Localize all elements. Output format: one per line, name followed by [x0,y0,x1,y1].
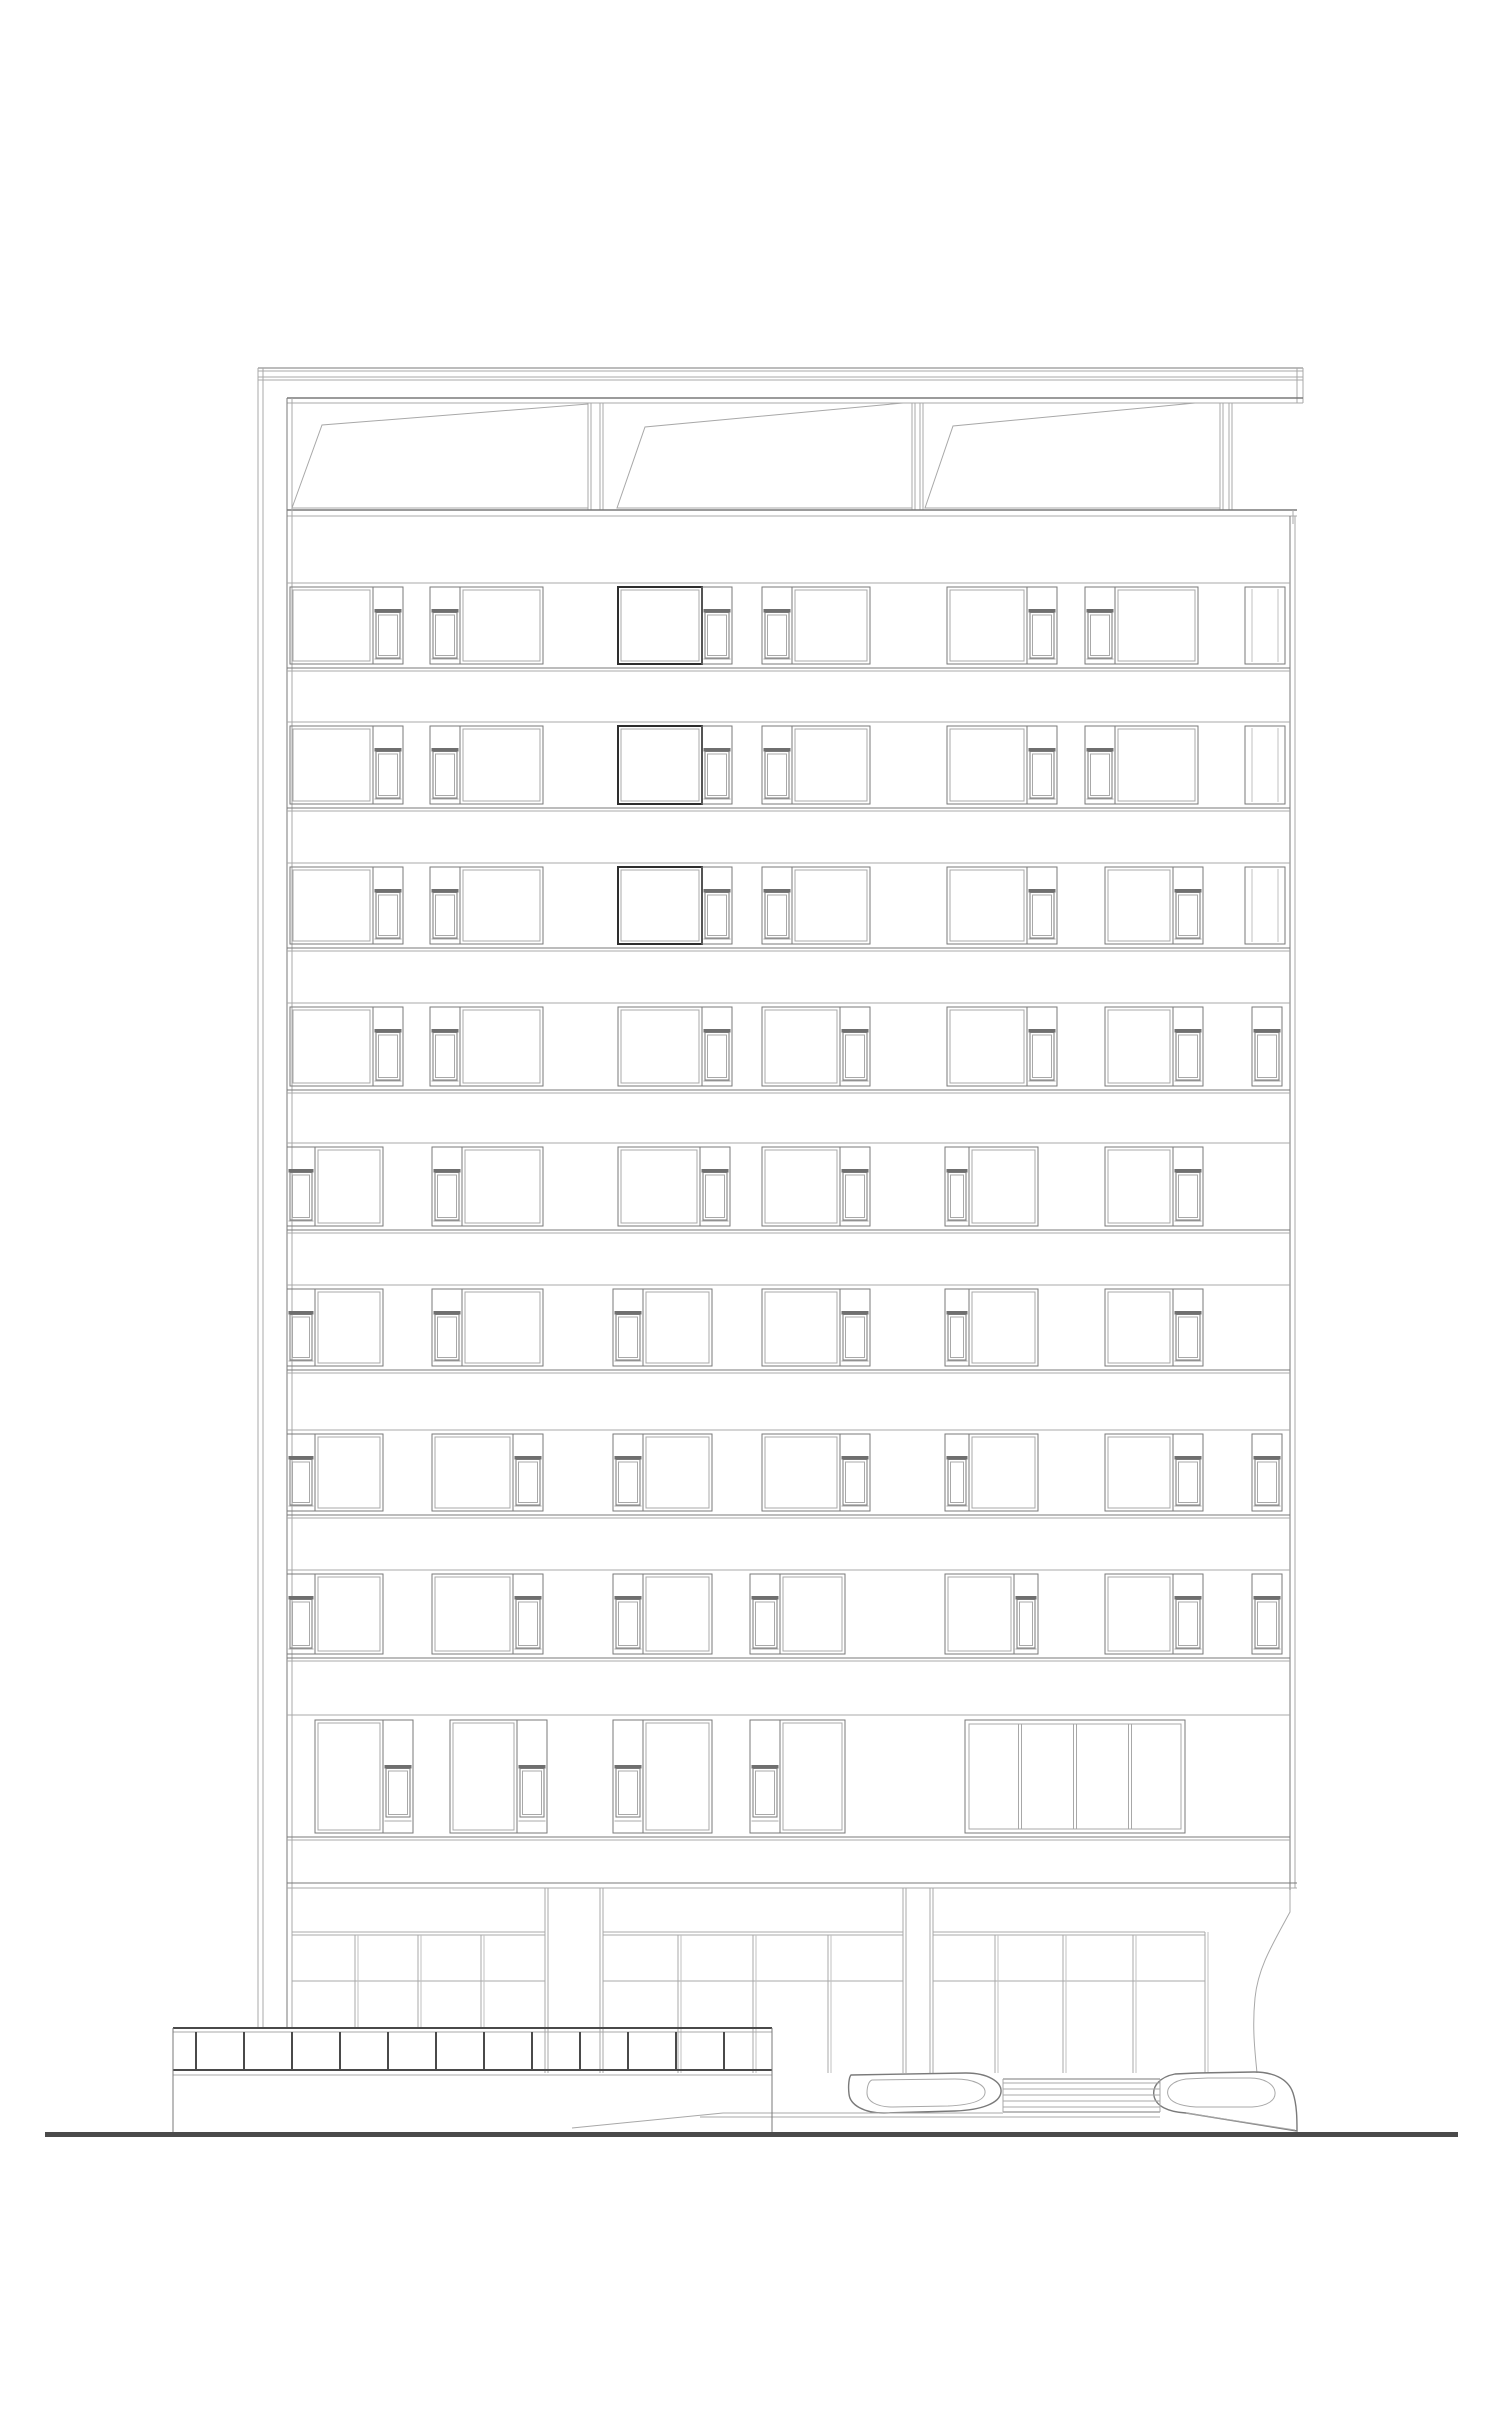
building-elevation-drawing [0,0,1500,2423]
facade-edges [287,398,1295,2028]
roof-pergola [287,398,1303,524]
floor-row [287,863,1290,951]
floor-row [287,1570,1290,1661]
floor-row [287,1430,1290,1518]
floor-row [287,583,1290,671]
floor-row [287,1715,1290,1840]
walkway-ramp [572,2113,1003,2128]
right-curve [1254,1890,1290,2073]
elevation-sheet [0,0,1500,2423]
floor-row [287,722,1290,811]
floor-row [287,1285,1290,1373]
ground-floor [287,1883,1297,2073]
entrance-steps [1003,2079,1160,2117]
floor-row [287,1143,1290,1233]
ground-line [45,2132,1458,2137]
floor-row [287,1003,1290,1093]
